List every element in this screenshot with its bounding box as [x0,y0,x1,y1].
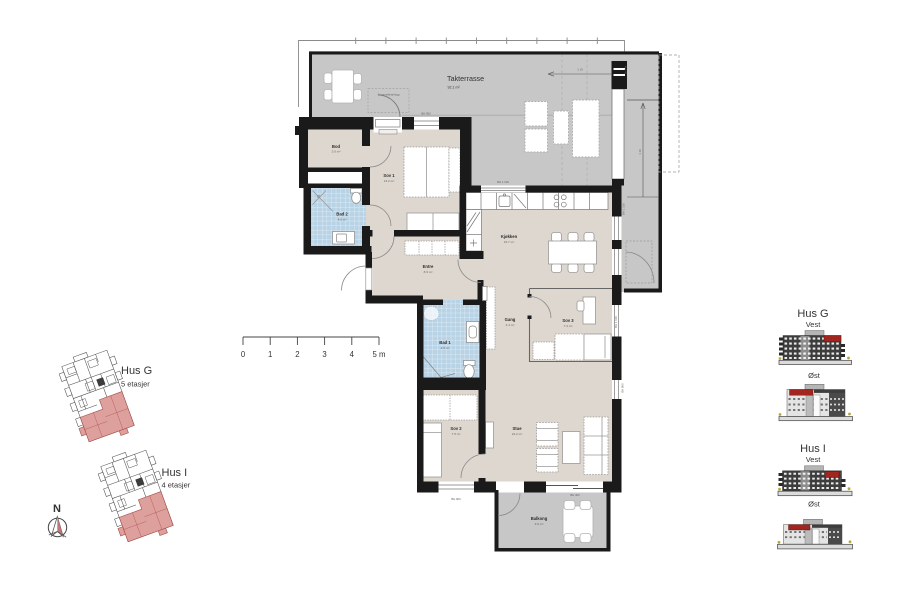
svg-text:8.9 m²: 8.9 m² [424,270,433,274]
svg-text:Snøsmelteanlegg: Snøsmelteanlegg [378,93,400,97]
svg-text:Vest: Vest [806,455,822,464]
svg-text:2x 34x: 2x 34x [624,65,628,74]
svg-text:Hus G: Hus G [121,365,152,377]
svg-text:4.5 m²: 4.5 m² [441,346,450,350]
svg-text:1: 1 [268,350,272,359]
svg-text:92.1 m²: 92.1 m² [448,86,461,90]
svg-text:Entre: Entre [423,264,434,269]
svg-text:4 etasjer: 4 etasjer [162,481,191,490]
svg-text:4.4 m²: 4.4 m² [506,323,515,327]
svg-text:BH 800: BH 800 [621,383,625,393]
svg-text:Stue: Stue [512,426,522,431]
svg-text:7.5 m²: 7.5 m² [452,432,461,436]
svg-text:Øst: Øst [808,371,821,380]
svg-text:Sov 2: Sov 2 [450,426,462,431]
svg-text:7.4 m²: 7.4 m² [564,324,573,328]
svg-text:1 19: 1 19 [577,68,583,72]
svg-text:Sov 3: Sov 3 [562,318,574,323]
svg-text:BH 950: BH 950 [421,112,431,116]
svg-text:1 19: 1 19 [638,149,642,155]
svg-text:Balkong: Balkong [531,516,548,521]
svg-text:Bad 2: Bad 2 [336,212,348,217]
svg-text:9.9 m²: 9.9 m² [535,522,544,526]
svg-text:3.0 m²: 3.0 m² [332,150,341,154]
svg-text:0: 0 [241,350,246,359]
svg-text:BH 1 100: BH 1 100 [497,180,509,184]
svg-text:Gang: Gang [505,317,516,322]
svg-text:BH 400: BH 400 [570,493,580,497]
svg-text:Takterrasse: Takterrasse [447,74,484,83]
svg-text:Sov 1: Sov 1 [383,173,395,178]
svg-text:Vest: Vest [806,320,822,329]
svg-text:BH 900: BH 900 [451,497,461,501]
svg-text:Kjøkken: Kjøkken [501,234,518,239]
svg-text:4: 4 [350,350,355,359]
svg-text:N: N [53,503,61,515]
svg-text:Bod: Bod [332,144,341,149]
svg-text:5 m: 5 m [373,350,386,359]
svg-text:BH 1 100: BH 1 100 [614,316,618,328]
svg-text:4.6 m²: 4.6 m² [338,218,347,222]
svg-text:15.7 m²: 15.7 m² [504,240,515,244]
svg-text:BH 1 100: BH 1 100 [622,203,626,215]
svg-text:13.2 m²: 13.2 m² [384,179,395,183]
svg-text:5 etasjer: 5 etasjer [121,380,150,389]
svg-text:Hus I: Hus I [800,443,826,455]
svg-text:Hus I: Hus I [162,467,188,479]
svg-text:3: 3 [322,350,326,359]
svg-text:Hus G: Hus G [797,308,828,320]
svg-text:2: 2 [295,350,299,359]
svg-text:Bad 1: Bad 1 [439,340,451,345]
svg-text:22.2 m²: 22.2 m² [512,432,523,436]
svg-text:Øst: Øst [808,500,821,509]
